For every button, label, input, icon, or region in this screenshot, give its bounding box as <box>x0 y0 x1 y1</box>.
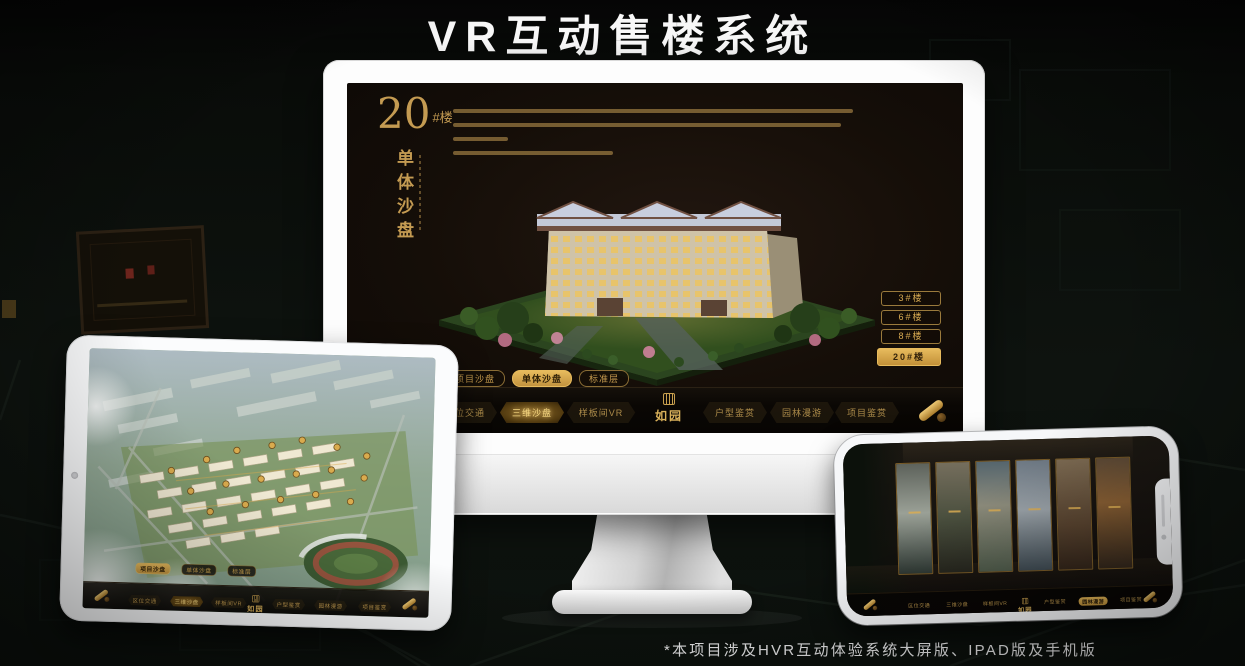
tablet-sub-tabs: 项目沙盘 单体沙盘 标准层 <box>135 559 258 581</box>
sandbox-sub-tabs: 项目沙盘 单体沙盘 标准层 <box>445 370 629 387</box>
monitor-stand-neck <box>572 512 732 596</box>
phone-brand-logo[interactable]: 如园 <box>1018 598 1033 615</box>
page-title: VR互动售楼系统 <box>0 2 1245 64</box>
page-root: VR互动售楼系统 20#楼 单体沙盘 <box>0 0 1245 666</box>
tablet-nav-item-location-traffic[interactable]: 区位交通 <box>128 595 161 606</box>
tablet-sub-tab-standard-floor[interactable]: 标准层 <box>227 565 256 577</box>
tablet-nav-item-project-gallery[interactable]: 项目鉴赏 <box>358 601 391 612</box>
phone-nav-item-floorplan-gallery[interactable]: 户型鉴赏 <box>1044 597 1066 605</box>
phone-nav-item-location-traffic[interactable]: 区位交通 <box>908 601 930 609</box>
phone-brand-logo-text: 如园 <box>1018 605 1033 614</box>
floor-button-8[interactable]: 8#楼 <box>881 329 941 344</box>
phone-scroll-menu-icon-right[interactable] <box>1141 590 1158 603</box>
tablet-nav-item-showroom-vr[interactable]: 样板间VR <box>211 597 247 608</box>
tablet-scroll-menu-icon-left[interactable] <box>92 588 111 603</box>
gallery-panel-3[interactable] <box>975 460 1013 573</box>
floor-button-6[interactable]: 6#楼 <box>881 310 941 325</box>
gallery-panel-2[interactable] <box>935 461 973 574</box>
scroll-cap <box>937 413 946 422</box>
building-number-suffix: #楼 <box>432 110 452 125</box>
description-line <box>453 137 508 141</box>
nav-item-showroom-vr[interactable]: 样板间VR <box>567 402 636 423</box>
floor-button-20[interactable]: 20#楼 <box>877 348 941 366</box>
tablet-seal-icon <box>252 595 259 602</box>
description-line <box>453 151 613 155</box>
brand-logo-text: 如园 <box>655 407 683 424</box>
tablet-sub-tab-project-sandbox[interactable]: 项目沙盘 <box>135 563 170 575</box>
seal-icon <box>663 393 675 405</box>
monitor-stand-base <box>552 590 752 614</box>
phone-seal-icon <box>1022 598 1028 604</box>
building-render-3d <box>417 168 897 388</box>
description-line <box>453 123 841 127</box>
phone-nav-item-showroom-vr[interactable]: 样板间VR <box>983 599 1008 607</box>
tablet-nav-item-3d-sandbox[interactable]: 三维沙盘 <box>170 596 203 607</box>
footnote: *本项目涉及HVR互动体验系统大屏版、IPAD版及手机版 <box>664 639 1242 660</box>
tablet-nav-item-garden-roam[interactable]: 园林漫游 <box>314 600 347 611</box>
tablet-brand-logo-text: 如园 <box>247 603 264 614</box>
phone-nav-item-3d-sandbox[interactable]: 三维沙盘 <box>946 600 968 608</box>
tablet-brand-logo[interactable]: 如园 <box>247 595 264 614</box>
background-gold-sign <box>2 300 16 318</box>
phone-notch <box>1155 478 1172 564</box>
brand-logo[interactable]: 如园 <box>655 393 683 424</box>
sub-tab-standard-floor[interactable]: 标准层 <box>579 370 629 387</box>
camera-dot-icon <box>1161 535 1166 540</box>
gallery-panel-6[interactable] <box>1095 457 1133 570</box>
background-plaque <box>77 227 207 333</box>
gallery-panel-4[interactable] <box>1015 459 1053 572</box>
building-type-vertical-label: 单体沙盘 <box>391 149 416 245</box>
scroll-menu-icon[interactable] <box>915 398 949 424</box>
tablet-nav-item-floorplan-gallery[interactable]: 户型鉴赏 <box>272 599 305 610</box>
sub-tab-single-sandbox[interactable]: 单体沙盘 <box>512 370 572 387</box>
tablet-screen: 项目沙盘 单体沙盘 标准层 区位交通 三维沙盘 样板间VR 如园 户型鉴赏 园林… <box>82 348 435 618</box>
phone-device: 区位交通 三维沙盘 样板间VR 如园 户型鉴赏 园林漫游 项目鉴赏 <box>833 426 1182 626</box>
tablet-camera <box>71 472 78 479</box>
tablet-device: 项目沙盘 单体沙盘 标准层 区位交通 三维沙盘 样板间VR 如园 户型鉴赏 园林… <box>59 335 459 632</box>
gallery-panel-1[interactable] <box>895 462 933 575</box>
nav-item-3d-sandbox[interactable]: 三维沙盘 <box>500 402 564 423</box>
tablet-scroll-menu-icon-right[interactable] <box>400 597 419 612</box>
gallery-panel-5[interactable] <box>1055 458 1093 571</box>
phone-scroll-menu-icon-left[interactable] <box>861 598 878 611</box>
building-title: 20#楼 <box>377 93 453 135</box>
phone-nav-item-project-gallery[interactable]: 项目鉴赏 <box>1120 595 1142 603</box>
tablet-sub-tab-single-sandbox[interactable]: 单体沙盘 <box>181 564 216 576</box>
building-number: 20 <box>377 89 430 138</box>
nav-item-garden-roam[interactable]: 园林漫游 <box>770 402 834 423</box>
nav-item-floorplan-gallery[interactable]: 户型鉴赏 <box>703 402 767 423</box>
floor-button-group: 3#楼 6#楼 8#楼 20#楼 <box>877 291 941 370</box>
phone-screen: 区位交通 三维沙盘 样板间VR 如园 户型鉴赏 园林漫游 项目鉴赏 <box>843 435 1174 616</box>
building-description-lines <box>453 109 853 165</box>
phone-nav-item-garden-roam[interactable]: 园林漫游 <box>1079 596 1108 605</box>
nav-item-project-gallery[interactable]: 项目鉴赏 <box>835 402 899 423</box>
description-line <box>453 109 853 113</box>
speaker-slit-icon <box>1161 495 1165 527</box>
floor-button-3[interactable]: 3#楼 <box>881 291 941 306</box>
scene-gallery <box>895 457 1133 576</box>
